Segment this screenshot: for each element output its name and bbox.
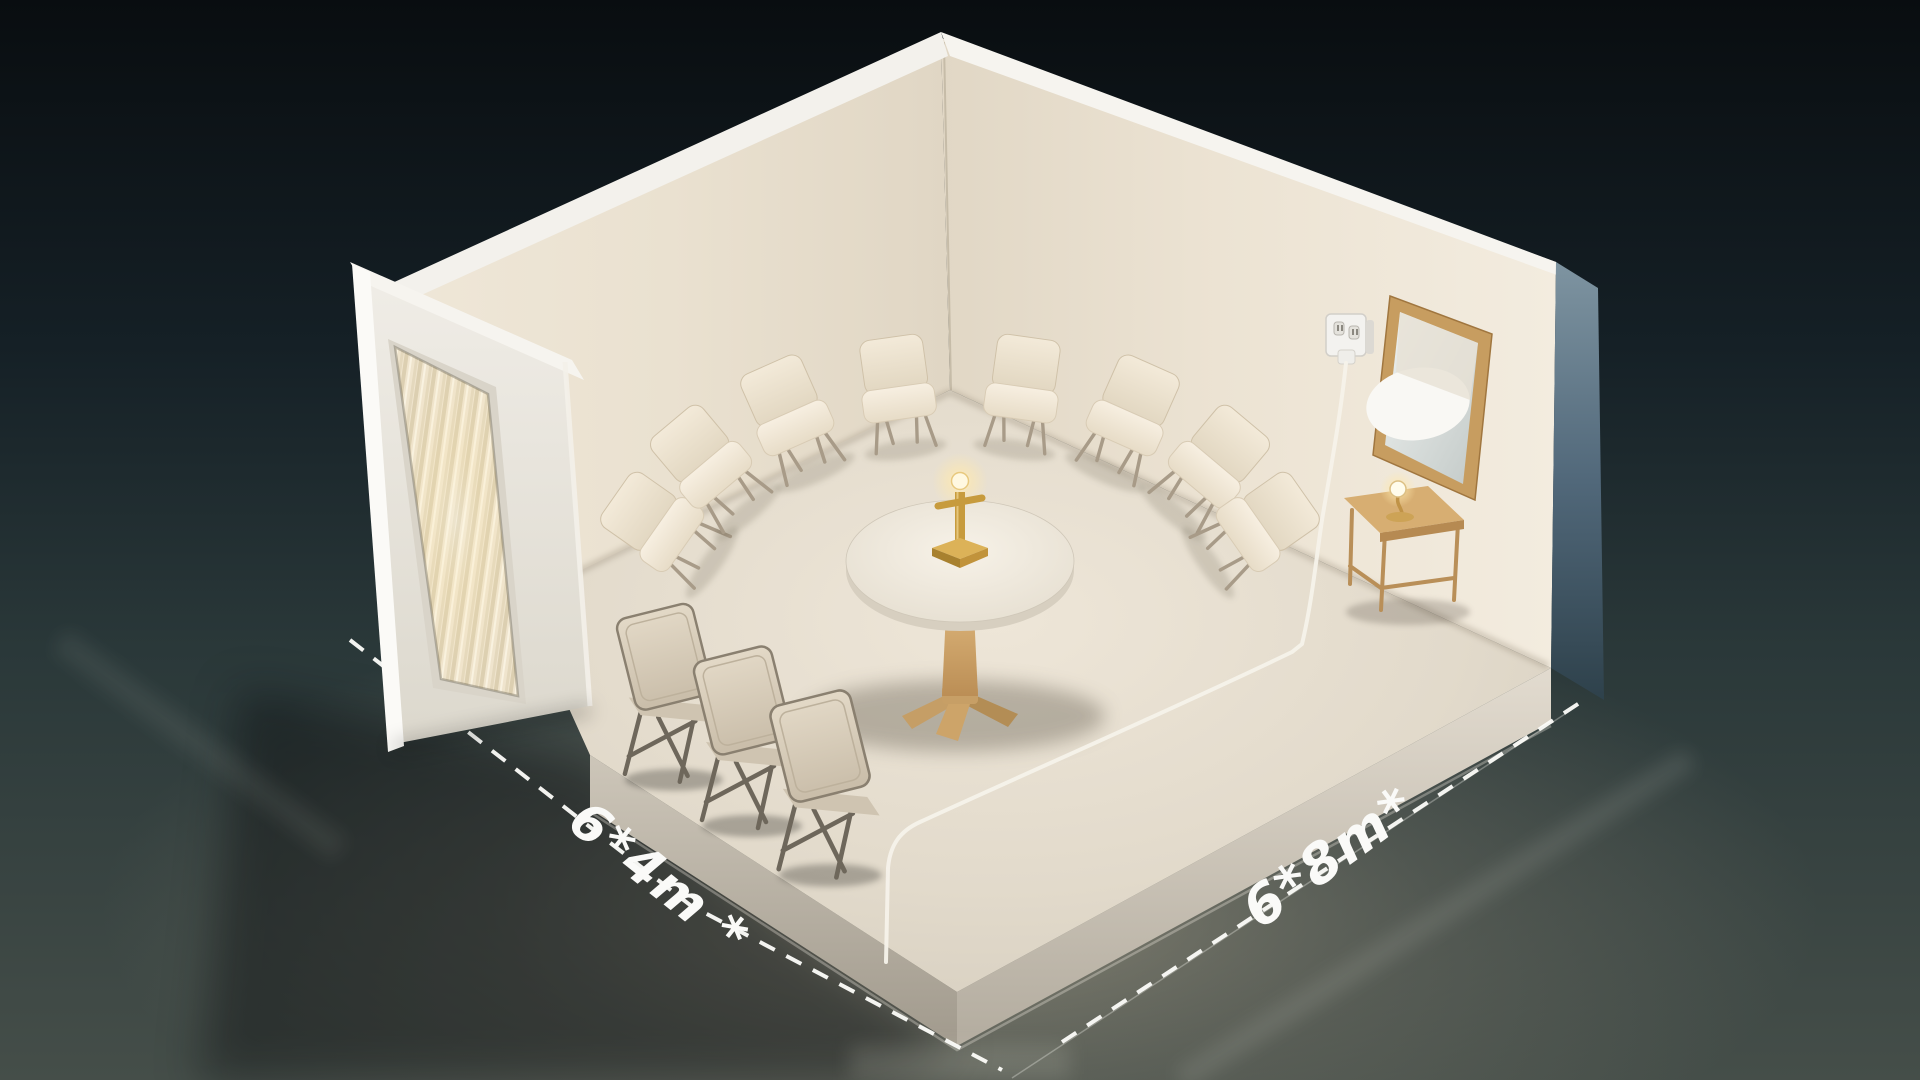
room-render-image: 6*4m * 6*8m* — [0, 0, 1920, 1080]
outlet-side-face — [1366, 320, 1374, 354]
right-wall-outer-face — [1551, 262, 1604, 700]
